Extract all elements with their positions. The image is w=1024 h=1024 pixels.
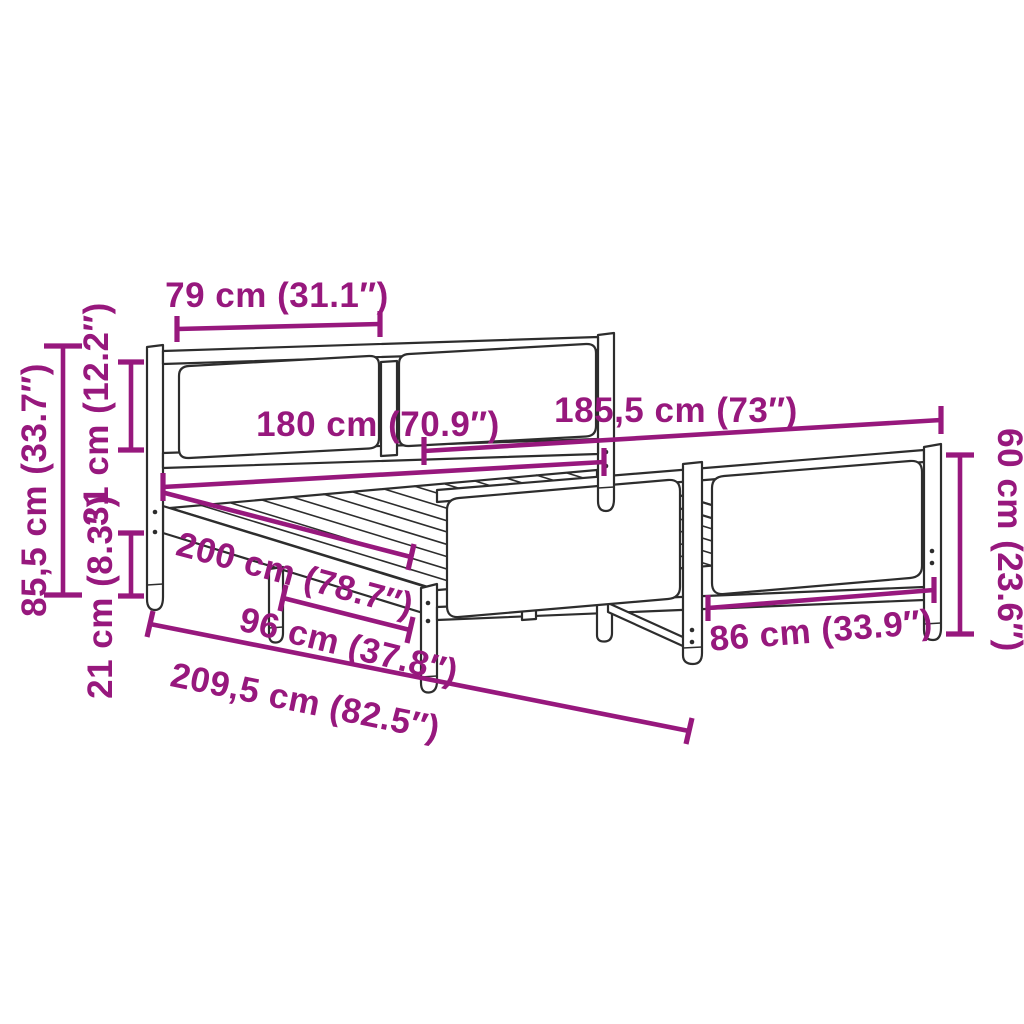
footboard-panel-left — [447, 480, 680, 617]
dimension-headboard-panel-width: 79 cm (31.1″) — [165, 276, 389, 342]
dimension-label-79cm: 79 cm (31.1″) — [165, 276, 389, 315]
diagram-canvas: 79 cm (31.1″) 31 cm (12.2″) 85,5 cm (33.… — [0, 0, 1024, 1024]
dimension-label-180cm: 180 cm (70.9″) — [256, 405, 500, 444]
dimension-label-86cm: 86 cm (33.9″) — [708, 602, 934, 658]
footboard-center-post — [683, 462, 702, 664]
dimension-side-rail-height: 21 cm (8.3″) — [81, 495, 144, 699]
dimension-label-60cm: 60 cm (23.6″) — [990, 428, 1024, 652]
dimension-headboard-top-section-height: 31 cm (12.2″) — [77, 302, 144, 526]
dimension-label-85-5cm: 85,5 cm (33.7″) — [15, 363, 54, 617]
bed-frame-dimension-diagram: 79 cm (31.1″) 31 cm (12.2″) 85,5 cm (33.… — [0, 0, 1024, 1024]
dimension-label-185-5cm: 185,5 cm (73″) — [554, 391, 798, 430]
footboard-panel-right — [712, 461, 922, 594]
dimension-headboard-total-height: 85,5 cm (33.7″) — [15, 346, 82, 617]
dimension-label-31cm: 31 cm (12.2″) — [77, 302, 116, 526]
dimension-label-21cm: 21 cm (8.3″) — [81, 495, 120, 699]
dimension-footboard-height: 60 cm (23.6″) — [946, 428, 1024, 652]
